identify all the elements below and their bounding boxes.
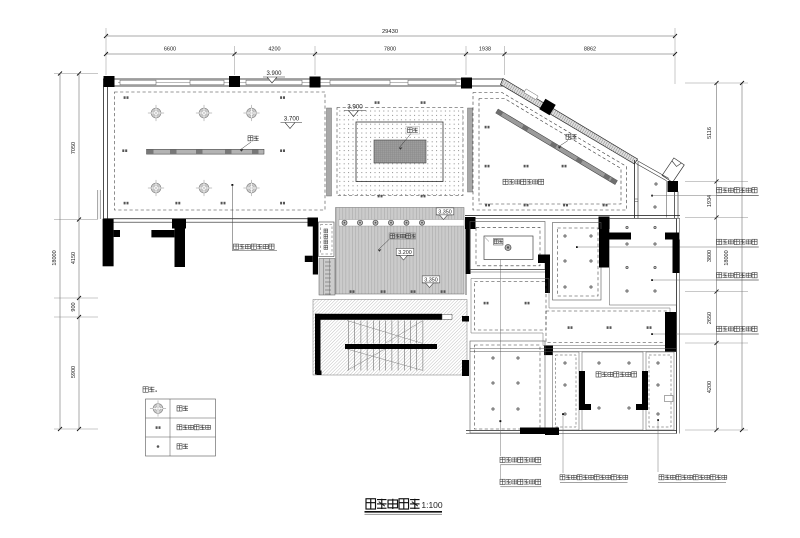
svg-text:3.700: 3.700	[284, 116, 300, 123]
svg-text:2650: 2650	[707, 312, 713, 324]
svg-text:18000: 18000	[52, 250, 58, 265]
svg-text:7050: 7050	[71, 142, 77, 154]
svg-text:4200: 4200	[268, 47, 280, 53]
svg-text:7800: 7800	[384, 47, 396, 53]
svg-text:1938: 1938	[479, 47, 491, 53]
svg-text:3.200: 3.200	[398, 250, 412, 256]
svg-text:4150: 4150	[71, 252, 77, 264]
svg-text:8862: 8862	[584, 47, 596, 53]
svg-text:3.350: 3.350	[438, 209, 452, 215]
svg-text:29430: 29430	[382, 29, 398, 35]
svg-text:5900: 5900	[71, 366, 77, 378]
svg-text:3.900: 3.900	[347, 104, 363, 111]
svg-text:5116: 5116	[707, 127, 713, 139]
svg-text:6600: 6600	[164, 47, 176, 53]
svg-text:1:100: 1:100	[421, 500, 443, 510]
svg-text:3800: 3800	[707, 250, 713, 262]
svg-text:3.900: 3.900	[266, 71, 282, 77]
svg-text:1934: 1934	[707, 195, 713, 207]
svg-text:4200: 4200	[707, 381, 713, 393]
svg-text:900: 900	[71, 302, 77, 311]
svg-text:18000: 18000	[724, 250, 730, 265]
svg-text:3.350: 3.350	[424, 277, 438, 283]
